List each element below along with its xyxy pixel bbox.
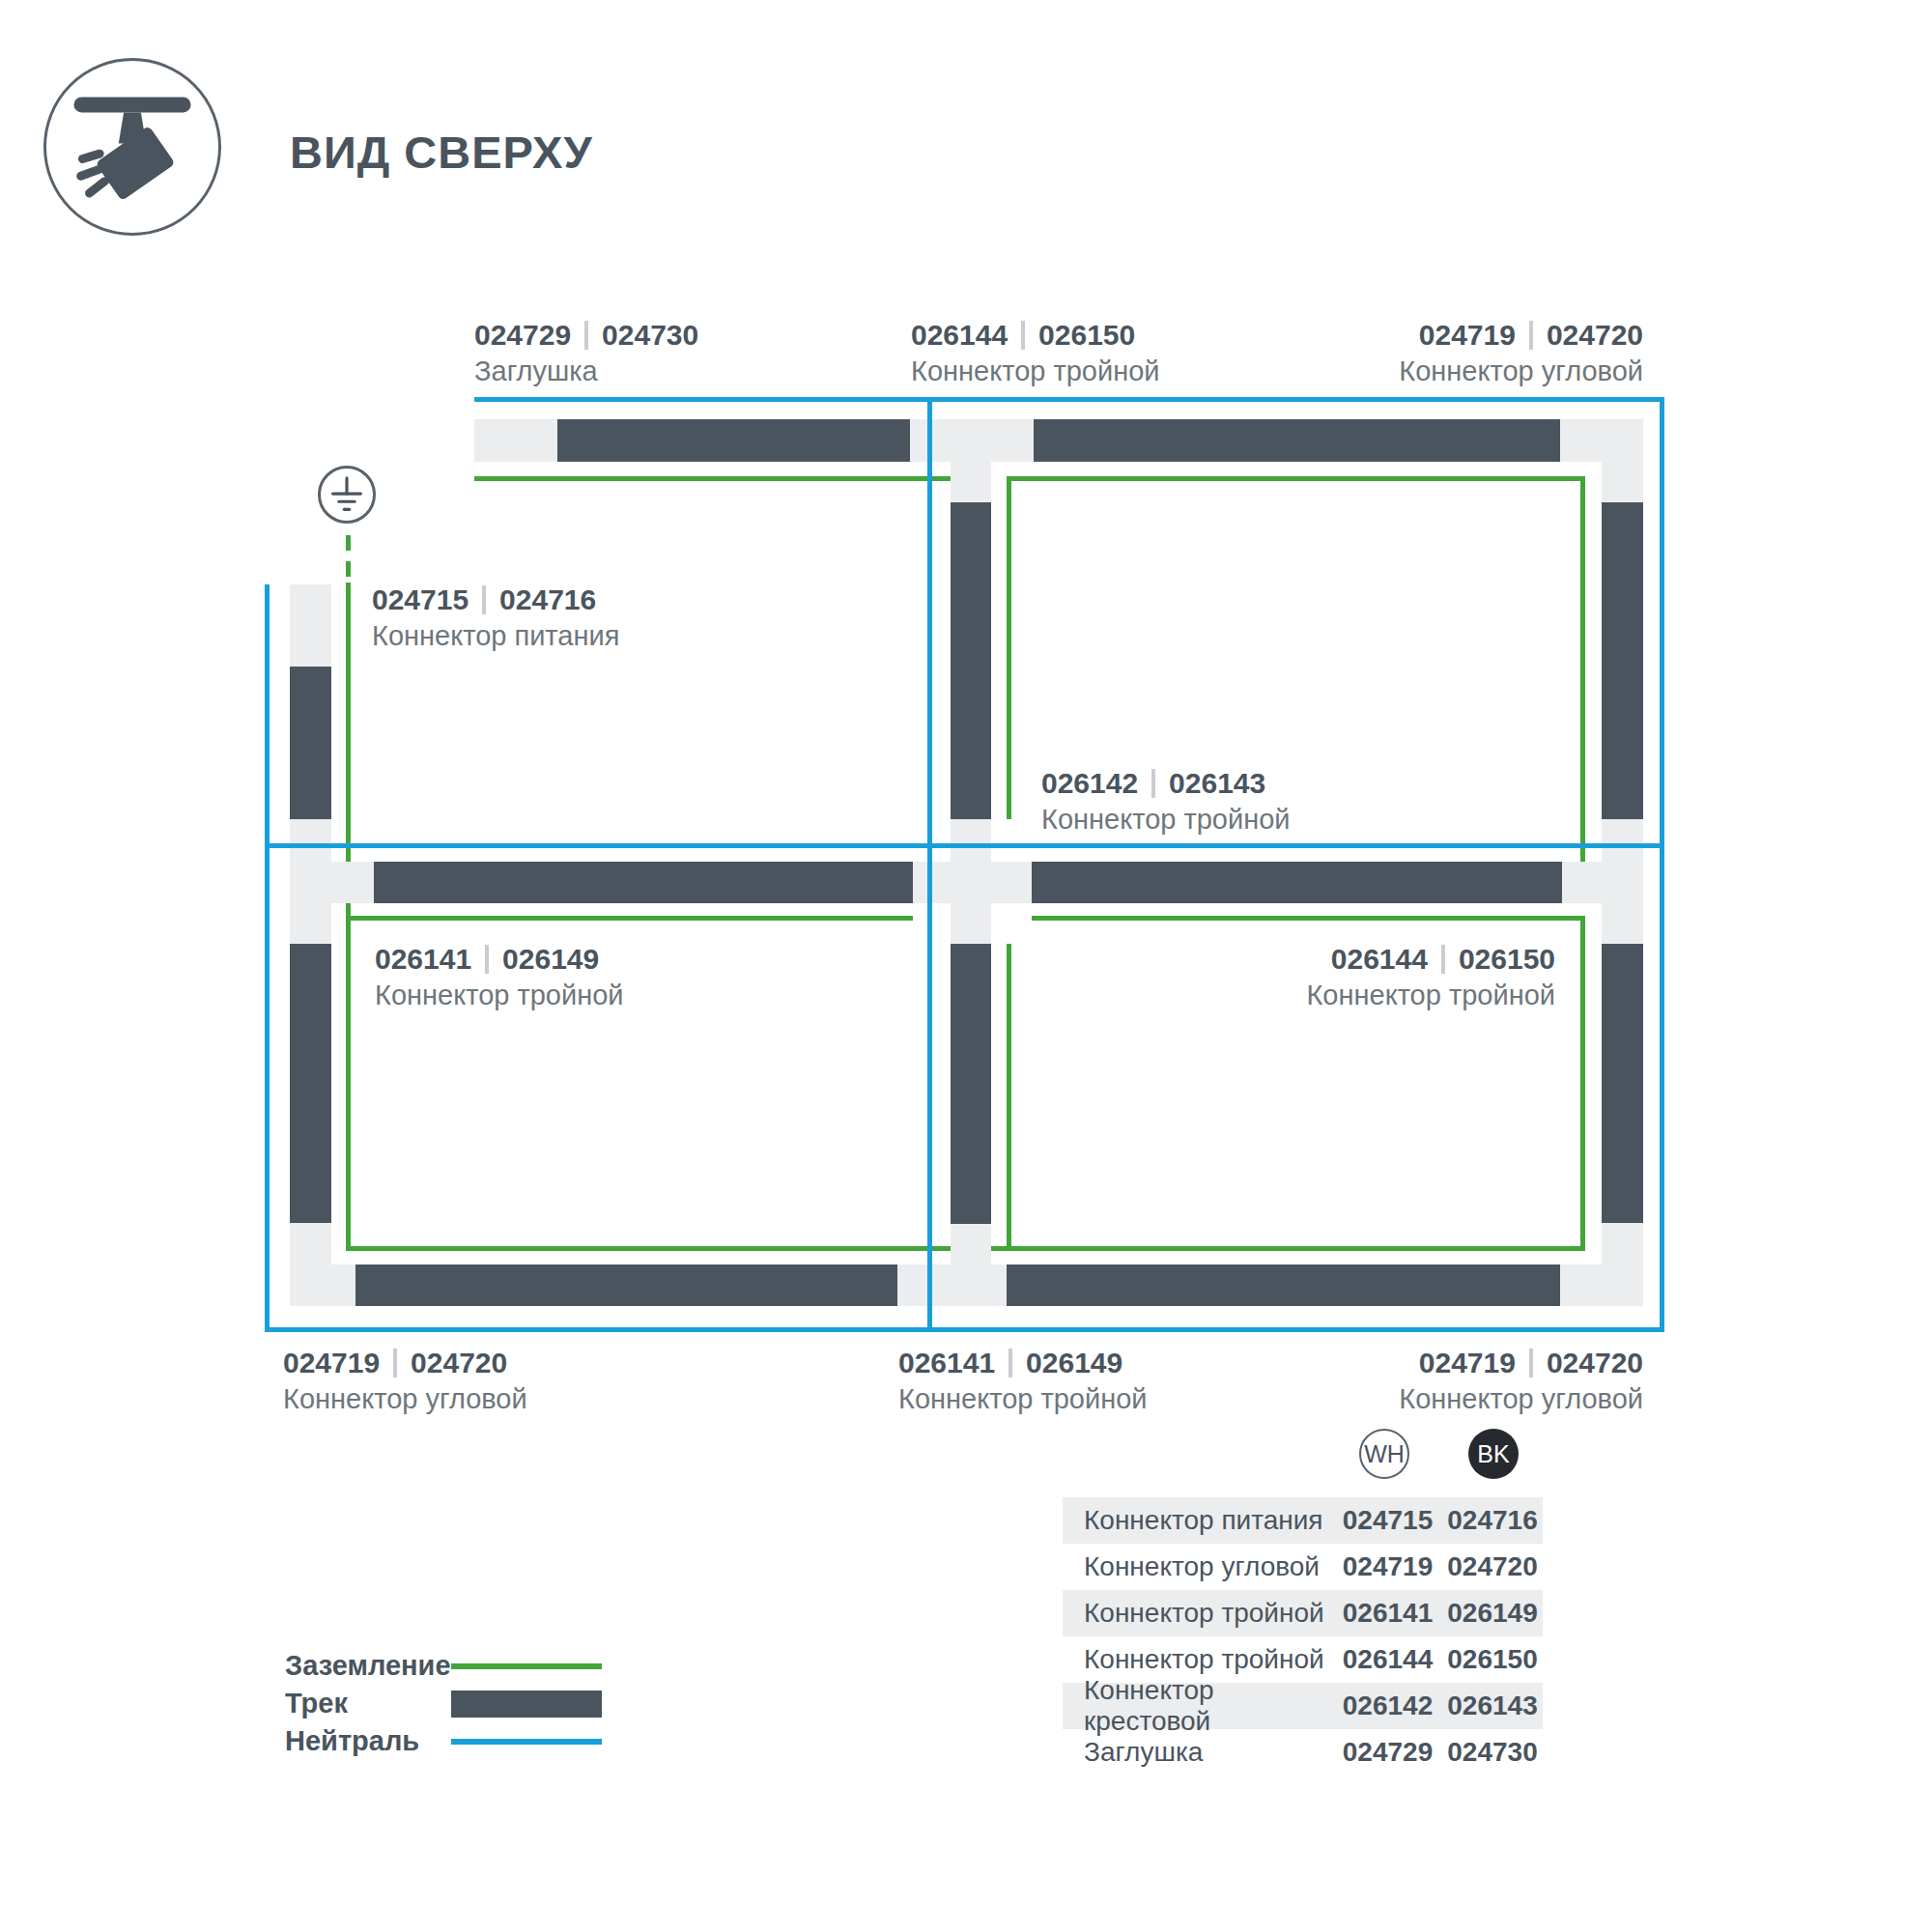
code-separator — [1009, 1349, 1012, 1378]
ground-line-segment — [1007, 476, 1585, 481]
row-name: Заглушка — [1063, 1737, 1333, 1768]
row-name: Коннектор тройной — [1063, 1644, 1333, 1675]
part-name: Коннектор угловой — [1399, 1385, 1643, 1413]
legend: Заземление Трек Нейтраль — [285, 1647, 602, 1760]
part-label-cross-connector: 026142 026143 Коннектор тройной — [1041, 769, 1291, 834]
track-segment — [1007, 1264, 1560, 1306]
code-bk: 024720 — [411, 1349, 507, 1378]
neutral-line-segment — [265, 843, 1664, 848]
code-separator — [393, 1349, 397, 1378]
legend-item-neutral: Нейтраль — [285, 1722, 602, 1760]
part-name: Коннектор тройной — [375, 981, 624, 1009]
table-row: Коннектор питания 024715 024716 — [1063, 1497, 1543, 1544]
code-wh: 026141 — [375, 945, 471, 974]
part-codes: 026141 026149 — [375, 945, 624, 974]
part-codes: 024719 024720 — [1399, 1349, 1643, 1378]
part-label-t-connector-top: 026144 026150 Коннектор тройной — [911, 321, 1160, 385]
code-bk: 024720 — [1547, 1349, 1643, 1378]
track-segment — [557, 419, 910, 462]
row-code-wh: 026141 — [1333, 1598, 1442, 1629]
part-codes: 026144 026150 — [911, 321, 1160, 350]
table-row: Коннектор угловой 024719 024720 — [1063, 1544, 1543, 1590]
row-code-bk: 026143 — [1442, 1690, 1543, 1721]
neutral-line-segment — [474, 397, 1664, 402]
code-separator — [1151, 769, 1155, 798]
part-name: Коннектор тройной — [1041, 806, 1291, 834]
track-spotlight-glyph — [46, 61, 218, 233]
part-label-power-connector: 024715 024716 Коннектор питания — [372, 585, 619, 650]
row-code-bk: 026149 — [1442, 1598, 1543, 1629]
legend-label: Нейтраль — [285, 1725, 451, 1757]
code-bk: 024720 — [1547, 321, 1643, 350]
ground-line-segment — [346, 1246, 951, 1251]
track-segment — [290, 667, 331, 819]
code-separator — [1529, 321, 1533, 350]
row-code-wh: 024715 — [1333, 1505, 1442, 1536]
row-code-wh: 026144 — [1333, 1644, 1442, 1675]
legend-label: Трек — [285, 1688, 451, 1719]
code-wh: 026144 — [1331, 945, 1428, 974]
code-separator — [1529, 1349, 1533, 1378]
parts-table: WH BK Коннектор питания 024715 024716 Ко… — [1063, 1429, 1543, 1776]
track-segment — [355, 1264, 897, 1306]
ground-line-segment — [1580, 476, 1585, 862]
ground-line-segment — [346, 582, 351, 862]
code-bk: 026150 — [1459, 945, 1555, 974]
part-label-corner-top-right: 024719 024720 Коннектор угловой — [1399, 321, 1643, 385]
ground-line-segment — [991, 1246, 1585, 1251]
ground-line-segment — [1032, 916, 1585, 921]
ground-line-dashed-segment — [346, 535, 351, 582]
code-bk: 024716 — [499, 585, 596, 614]
track-swatch — [451, 1690, 602, 1718]
code-bk: 026149 — [502, 945, 599, 974]
part-codes: 024719 024720 — [1399, 321, 1643, 350]
code-separator — [482, 585, 486, 614]
part-label-t-connector-left: 026141 026149 Коннектор тройной — [375, 945, 624, 1009]
row-code-wh: 024729 — [1333, 1737, 1442, 1768]
row-code-bk: 024720 — [1442, 1551, 1543, 1582]
code-separator — [584, 321, 588, 350]
page-title: ВИД СВЕРХУ — [290, 126, 593, 179]
code-wh: 024719 — [1419, 321, 1516, 350]
code-wh: 024719 — [1419, 1349, 1516, 1378]
code-separator — [485, 945, 489, 974]
part-name: Коннектор угловой — [283, 1385, 527, 1413]
track-segment — [951, 502, 991, 819]
row-name: Коннектор питания — [1063, 1505, 1333, 1536]
table-row: Коннектор тройной 026141 026149 — [1063, 1590, 1543, 1636]
row-code-wh: 026142 — [1333, 1690, 1442, 1721]
track-segment — [1602, 944, 1643, 1223]
part-codes: 024715 024716 — [372, 585, 619, 614]
ground-line-segment — [1580, 916, 1585, 1251]
table-row: Заглушка 024729 024730 — [1063, 1729, 1543, 1776]
track-segment — [290, 944, 331, 1223]
neutral-line-segment — [1660, 397, 1664, 1332]
part-label-t-connector-bottom: 026141 026149 Коннектор тройной — [898, 1349, 1148, 1413]
row-name: Коннектор крестовой — [1063, 1675, 1333, 1737]
legend-item-ground: Заземление — [285, 1647, 602, 1685]
track-segment — [1032, 862, 1562, 903]
part-codes: 024729 024730 — [474, 321, 698, 350]
code-wh: 024715 — [372, 585, 469, 614]
part-label-corner-bottom-left: 024719 024720 Коннектор угловой — [283, 1349, 527, 1413]
top-view-diagram-page: ВИД СВЕРХУ 024729 024730 Заглушка 026144… — [0, 0, 1932, 1932]
track-segment — [1034, 419, 1560, 462]
white-color-badge: WH — [1359, 1429, 1409, 1479]
track-segment — [1602, 502, 1643, 819]
part-name: Коннектор тройной — [898, 1385, 1148, 1413]
part-codes: 026144 026150 — [1306, 945, 1555, 974]
neutral-line-segment — [927, 397, 932, 1332]
code-bk: 024730 — [602, 321, 698, 350]
code-wh: 024719 — [283, 1349, 380, 1378]
row-code-bk: 024730 — [1442, 1737, 1543, 1768]
code-wh: 024729 — [474, 321, 571, 350]
row-code-wh: 024719 — [1333, 1551, 1442, 1582]
code-bk: 026150 — [1038, 321, 1135, 350]
part-label-corner-bottom-right: 024719 024720 Коннектор угловой — [1399, 1349, 1643, 1413]
code-wh: 026144 — [911, 321, 1008, 350]
ground-line-segment — [346, 903, 351, 1251]
row-name: Коннектор угловой — [1063, 1551, 1333, 1582]
black-color-badge: BK — [1468, 1429, 1519, 1479]
ground-line-segment — [1007, 944, 1011, 1251]
earth-ground-icon — [318, 466, 376, 524]
code-bk: 026149 — [1026, 1349, 1122, 1378]
track-segment — [951, 944, 991, 1224]
neutral-line-swatch — [451, 1739, 602, 1745]
part-name: Заглушка — [474, 357, 698, 385]
part-codes: 026142 026143 — [1041, 769, 1291, 798]
ground-line-segment — [346, 916, 913, 921]
code-separator — [1021, 321, 1025, 350]
legend-label: Заземление — [285, 1650, 451, 1682]
part-name: Коннектор тройной — [911, 357, 1160, 385]
code-separator — [1441, 945, 1445, 974]
neutral-line-segment — [265, 584, 270, 1332]
track-light-icon — [43, 58, 221, 236]
code-bk: 026143 — [1169, 769, 1265, 798]
legend-item-track: Трек — [285, 1685, 602, 1722]
part-codes: 024719 024720 — [283, 1349, 527, 1378]
row-code-bk: 026150 — [1442, 1644, 1543, 1675]
row-code-bk: 024716 — [1442, 1505, 1543, 1536]
part-name: Коннектор тройной — [1306, 981, 1555, 1009]
color-column-badges: WH BK — [1063, 1429, 1543, 1479]
table-row: Коннектор крестовой 026142 026143 — [1063, 1683, 1543, 1729]
part-label-t-connector-right: 026144 026150 Коннектор тройной — [1306, 945, 1555, 1009]
table-rows: Коннектор питания 024715 024716 Коннекто… — [1063, 1497, 1543, 1776]
ground-line-segment — [1007, 476, 1011, 819]
neutral-line-segment — [265, 1327, 1664, 1332]
track-segment — [374, 862, 913, 903]
part-name: Коннектор питания — [372, 622, 619, 650]
ground-line-segment — [474, 476, 951, 481]
part-name: Коннектор угловой — [1399, 357, 1643, 385]
part-label-end-cap-top: 024729 024730 Заглушка — [474, 321, 698, 385]
code-wh: 026142 — [1041, 769, 1138, 798]
part-codes: 026141 026149 — [898, 1349, 1148, 1378]
row-name: Коннектор тройной — [1063, 1598, 1333, 1629]
code-wh: 026141 — [898, 1349, 995, 1378]
ground-line-swatch — [451, 1663, 602, 1669]
